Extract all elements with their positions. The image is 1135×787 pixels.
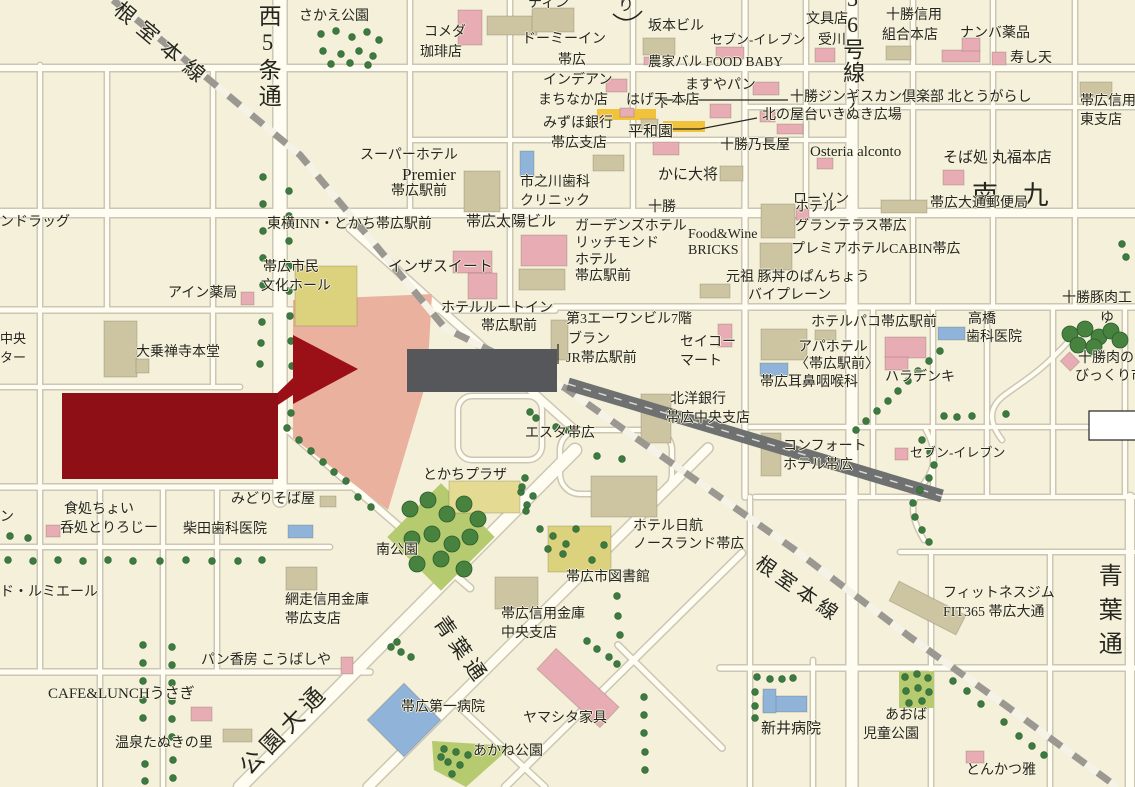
map-label: 帯広 bbox=[558, 54, 586, 69]
map-label: 帯広支店 bbox=[551, 137, 607, 152]
map-label: ティン bbox=[528, 0, 569, 12]
map-label: 帯広支店 bbox=[285, 613, 341, 628]
map-label: インデアン bbox=[543, 74, 612, 89]
street-name-label: 西5条通 bbox=[255, 4, 279, 110]
map-label: ガーデンズホテル bbox=[575, 220, 687, 235]
map-label: 組合本店 bbox=[882, 29, 938, 44]
map-label: Food&Wine bbox=[688, 228, 757, 243]
map-label: とんかつ雅 bbox=[966, 764, 1036, 779]
map-label: みどりそば屋 bbox=[231, 493, 315, 508]
map-label: 北洋銀行 bbox=[670, 393, 726, 408]
map-label: 中央 bbox=[0, 332, 26, 346]
map-label: ナンバ薬品 bbox=[960, 27, 1030, 42]
street-name-label: 青葉通 bbox=[430, 612, 493, 689]
map-label: 児童公園 bbox=[863, 728, 919, 743]
map-label: 十勝信用 bbox=[886, 9, 942, 24]
map-label: インザスイート bbox=[388, 260, 493, 276]
map-label: Premier bbox=[402, 166, 456, 184]
map-label: ター bbox=[0, 351, 26, 365]
map-label: ブラン bbox=[568, 333, 610, 348]
map-label: 帯広大通郵便局 bbox=[930, 197, 1028, 212]
map-label: 十勝ジンギスカン倶楽部 北とうがらし bbox=[790, 91, 1032, 106]
map-label: はげ天 本店 bbox=[626, 94, 700, 109]
map-label: あおば bbox=[885, 709, 927, 724]
map-label: 市之川歯科 bbox=[520, 176, 590, 191]
map-label: バイプレーン bbox=[748, 289, 831, 304]
map-label: 第3エーワンビル7階 bbox=[566, 313, 692, 328]
map-label: 帯広駅前 bbox=[391, 185, 447, 200]
map-label: スーパーホテル bbox=[360, 149, 458, 164]
map-label: 寿し天 bbox=[1010, 52, 1052, 67]
map-label: 帯広耳鼻咽喉科 bbox=[760, 376, 858, 391]
map-label: 文具店 bbox=[806, 13, 848, 28]
street-name-label: 根室本線 bbox=[110, 0, 216, 92]
map-label: セイコー bbox=[680, 336, 736, 351]
map-label: 帯広駅前 bbox=[575, 270, 631, 285]
property-label bbox=[62, 393, 278, 479]
map-label: 十勝豚肉工 bbox=[1062, 292, 1132, 307]
map-label: セブン-イレブン bbox=[710, 33, 805, 47]
map-label: リッチモンド bbox=[575, 237, 659, 252]
map-label: 帯広市図書館 bbox=[566, 571, 650, 586]
map-label: FIT365 帯広大通 bbox=[943, 606, 1045, 621]
map-label: ホテル bbox=[795, 201, 837, 216]
map-label: ホテルルートイン bbox=[441, 302, 553, 317]
map-label: 呑処とりろじー bbox=[60, 522, 158, 537]
map-label: フィットネスジム bbox=[943, 587, 1055, 602]
map-label: 坂本ビル bbox=[648, 20, 704, 35]
map-label: 帯広駅前 bbox=[481, 320, 537, 335]
street-name-label: 青葉通 bbox=[1094, 563, 1119, 665]
map-label: 帯広中央支店 bbox=[666, 412, 750, 427]
street-name-label: 根室本線 bbox=[751, 553, 845, 628]
map-label: BRICKS bbox=[688, 244, 739, 259]
station-badge bbox=[407, 349, 557, 392]
map-label: ホテル帯広 bbox=[783, 459, 853, 474]
map-label: ホテルパコ帯広駅前 bbox=[811, 316, 937, 331]
map-label: 帯広信用金庫 bbox=[501, 608, 585, 623]
map-label: ハラデンキ bbox=[885, 371, 955, 386]
map-label: ドーミーイン bbox=[522, 33, 606, 48]
map-label: CAFE&LUNCHうさぎ bbox=[48, 687, 195, 703]
map-label: 帯広太陽ビル bbox=[466, 215, 556, 231]
map-label: 農家バル FOOD BABY bbox=[648, 55, 783, 69]
map-label: びっくり市 bbox=[1075, 370, 1135, 385]
map-label: クリニック bbox=[520, 195, 590, 210]
map-label: セブン-イレブン bbox=[910, 446, 1005, 460]
map-label: 元祖 豚丼のぱんちょう bbox=[726, 271, 870, 286]
map-label: 帯広市民 bbox=[263, 261, 319, 276]
map-label: 十勝 bbox=[648, 201, 676, 216]
map-label: 中央支店 bbox=[501, 627, 557, 642]
map-label: Osteria alconto bbox=[810, 145, 901, 161]
map-label: 食処ちょい bbox=[64, 503, 134, 518]
map-label: プレミアホテルCABIN帯広 bbox=[791, 243, 961, 258]
map-label: ン bbox=[0, 511, 14, 526]
map-label: 文化ホール bbox=[261, 280, 331, 295]
map-label: 新井病院 bbox=[761, 722, 821, 738]
map-label: ド・ルミエール bbox=[0, 586, 98, 601]
map-label: 温泉たぬきの里 bbox=[115, 737, 213, 752]
map-label: ホテル日航 bbox=[633, 520, 703, 535]
street-name-label: 公園大通 bbox=[236, 680, 334, 780]
map-label: とかちプラザ bbox=[423, 469, 507, 484]
map-label: かに大将 bbox=[658, 168, 718, 184]
map-label: ンドラッグ bbox=[0, 216, 70, 231]
map-label: あかね公園 bbox=[473, 745, 543, 760]
map-label: ゆ bbox=[1100, 312, 1114, 327]
map-label: 南公園 bbox=[376, 544, 418, 559]
map-label: さかえ公園 bbox=[299, 10, 369, 25]
map-label: 網走信用金庫 bbox=[285, 594, 369, 609]
map-label: コンフォート bbox=[783, 440, 867, 455]
map-label: みずほ銀行 bbox=[543, 117, 613, 132]
map-label: コメダ bbox=[424, 26, 466, 41]
map-label: グランテラス帯広 bbox=[795, 220, 907, 235]
map-label: 帯広信用 bbox=[1080, 95, 1135, 110]
map-label: 高橋 bbox=[968, 313, 996, 328]
map-label: アパホテル bbox=[798, 341, 868, 356]
map-label: 十勝乃長屋 bbox=[720, 139, 790, 154]
map-canvas: 根室本線根室本線西5条通36号線)南 九青葉通青葉通公園大通さかえ公園コメダ珈琲… bbox=[0, 0, 1135, 787]
map-label: 北の屋台いきぬき広場 bbox=[762, 109, 902, 124]
map-label: そば処 丸福本店 bbox=[943, 151, 1052, 167]
map-label: 十勝肉の bbox=[1078, 352, 1134, 367]
map-label: 珈琲店 bbox=[420, 46, 462, 61]
map-label: 歯科医院 bbox=[966, 331, 1022, 346]
map-label: JR帯広駅前 bbox=[566, 352, 637, 367]
map-label: ノースランド帯広 bbox=[633, 538, 744, 553]
map-label: 東横INN・とかち帯広駅前 bbox=[267, 218, 432, 233]
map-label: 大乗禅寺本堂 bbox=[136, 346, 220, 361]
map-label: マート bbox=[680, 355, 722, 370]
map-label: 東支店 bbox=[1080, 114, 1122, 129]
map-label: ホテル bbox=[575, 254, 617, 269]
map-label: 平和園 bbox=[628, 125, 673, 141]
map-label: 〈帯広駅前〉 bbox=[795, 358, 879, 373]
map-label: アイン薬局 bbox=[168, 287, 237, 302]
map-label: り bbox=[618, 0, 634, 15]
map-label: 帯広第一病院 bbox=[401, 701, 485, 716]
map-label: ますやパン bbox=[685, 79, 756, 94]
map-label: 受川 bbox=[818, 34, 846, 49]
map-label: 柴田歯科医院 bbox=[183, 523, 267, 538]
map-label: パン香房 こうばしや bbox=[201, 654, 331, 669]
map-label: エスタ帯広 bbox=[525, 427, 595, 442]
map-label: まちなか店 bbox=[538, 94, 608, 109]
map-label: ヤマシタ家具 bbox=[523, 712, 607, 727]
